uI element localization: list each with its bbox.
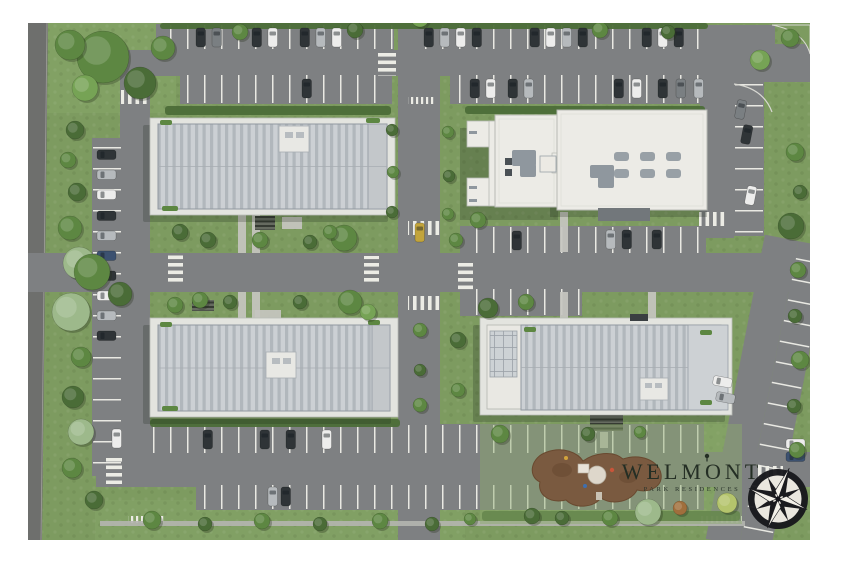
car: [300, 28, 310, 47]
hedge-row: [165, 106, 391, 115]
car: [97, 331, 116, 341]
car: [97, 170, 116, 180]
roof-planter: [700, 400, 712, 405]
car: [456, 28, 466, 47]
rooftop-vent: [655, 383, 662, 388]
site-plan-render: WELMONT PARK RESIDENCES: [0, 0, 845, 563]
car: [530, 28, 540, 47]
car: [622, 230, 632, 249]
project-subtitle: PARK RESIDENCES: [644, 486, 741, 493]
car: [260, 430, 270, 449]
walkway: [560, 292, 568, 318]
rooftop-vent: [645, 383, 652, 388]
car: [440, 28, 450, 47]
building-4: [473, 314, 732, 422]
site-plan-canvas: WELMONT PARK RESIDENCES: [0, 0, 845, 563]
car: [508, 79, 518, 98]
building-2: [460, 110, 707, 221]
car: [546, 28, 556, 47]
crosswalk: [378, 50, 396, 76]
car: [562, 28, 572, 47]
rooftop-unit: [512, 150, 536, 166]
car: [97, 311, 116, 321]
rooftop-vent: [272, 358, 280, 364]
car: [470, 79, 480, 98]
rooftop-unit-dark: [505, 158, 512, 165]
play-equipment: [583, 484, 587, 488]
car: [97, 211, 116, 221]
car: [578, 28, 588, 47]
rooftop-unit: [598, 176, 614, 188]
parking-lot: [180, 74, 392, 104]
car: [196, 28, 206, 47]
car: [112, 429, 122, 448]
terrace-skylight-grid: [490, 331, 517, 377]
car: [286, 430, 296, 449]
car: [694, 79, 704, 98]
roof-planter: [366, 118, 380, 123]
car: [97, 190, 116, 200]
roof-planter: [162, 406, 178, 411]
car: [652, 230, 662, 249]
path-exit-marking: [408, 97, 434, 104]
balcony-tick: [469, 186, 477, 189]
roof-planter: [160, 322, 172, 327]
building-1: [143, 118, 395, 222]
rooftop-vent: [285, 132, 293, 138]
car: [642, 28, 652, 47]
car: [322, 430, 332, 449]
crosswalk: [168, 255, 183, 285]
car: [424, 28, 434, 47]
building-4-penthouse: [640, 378, 668, 400]
roof-planter: [160, 120, 172, 125]
walkway: [648, 292, 656, 318]
rooftop-vent: [614, 152, 629, 161]
entrance-canopy: [630, 314, 648, 321]
car: [606, 230, 616, 249]
site-plan: WELMONT PARK RESIDENCES: [28, 9, 830, 552]
car: [97, 231, 116, 241]
car: [302, 79, 312, 98]
balcony-tick: [469, 199, 477, 202]
playground-structure: [578, 464, 589, 473]
car: [97, 150, 116, 160]
car: [332, 28, 342, 47]
car: [632, 79, 642, 98]
roof-planter: [524, 327, 536, 332]
roof-planter: [700, 330, 712, 335]
car: [486, 79, 496, 98]
car: [676, 79, 686, 98]
car: [472, 28, 482, 47]
rooftop-vent: [283, 358, 291, 364]
building-1-penthouse: [279, 126, 309, 152]
car: [268, 28, 278, 47]
car: [212, 28, 222, 47]
play-equipment: [610, 468, 614, 472]
project-title: WELMONT: [622, 459, 762, 484]
crosswalk: [364, 256, 379, 284]
parking-lot: [460, 226, 706, 254]
building-3-penthouse: [266, 352, 296, 378]
crosswalk: [458, 262, 473, 290]
entrance-canopy: [598, 208, 650, 221]
roof-planter: [162, 206, 178, 211]
car: [281, 487, 291, 506]
skylight: [540, 156, 556, 172]
rooftop-vent: [640, 169, 655, 178]
building-2-right-block: [557, 110, 707, 210]
playground-patch: [552, 463, 572, 477]
car: [512, 231, 522, 250]
car: [316, 28, 326, 47]
rooftop-unit: [520, 164, 536, 177]
car: [658, 79, 668, 98]
playground-carousel: [588, 466, 606, 484]
rooftop-vent: [640, 152, 655, 161]
car: [203, 430, 213, 449]
walkway: [238, 292, 246, 318]
car: [415, 223, 425, 242]
rooftop-vent: [666, 169, 681, 178]
crosswalk: [106, 456, 122, 484]
rooftop-vent: [666, 152, 681, 161]
balcony-tick: [469, 131, 477, 134]
play-equipment: [564, 456, 568, 460]
crosswalk: [408, 296, 440, 310]
car: [268, 487, 278, 506]
play-equipment: [596, 492, 602, 500]
building-3: [143, 318, 398, 424]
rooftop-unit-dark: [505, 169, 512, 176]
rooftop-vent: [296, 132, 304, 138]
car: [614, 79, 624, 98]
car: [524, 79, 534, 98]
rooftop-vent: [614, 169, 629, 178]
car: [252, 28, 262, 47]
walkway: [560, 212, 568, 252]
